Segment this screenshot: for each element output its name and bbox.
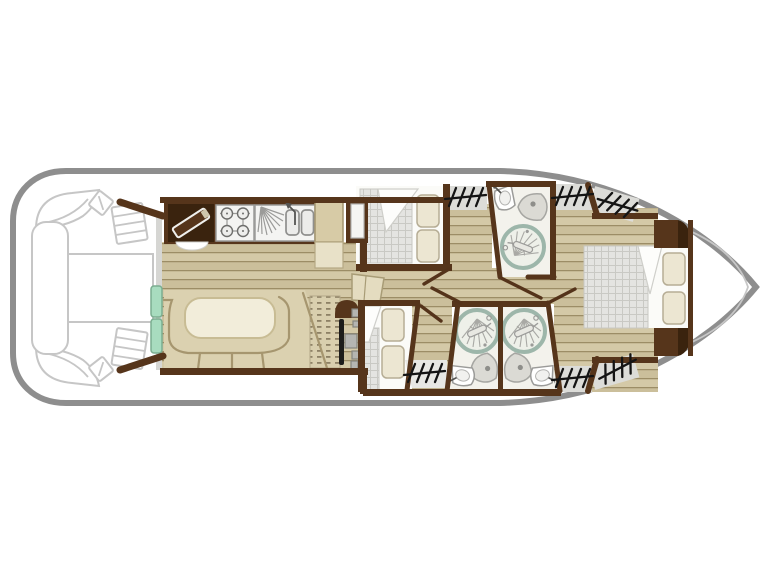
sliding-door-panel-1 — [151, 286, 162, 317]
under-counter-cabinet — [315, 242, 343, 268]
bow-headboard-top — [654, 220, 678, 248]
bow-headboard-bottom — [654, 328, 678, 356]
bed-bottom-pillow-2 — [382, 346, 404, 378]
bed-bow-mattress — [584, 246, 648, 328]
bed-bow-pillow-1 — [663, 253, 685, 285]
bow-bottom-wall — [592, 357, 658, 363]
saloon-top-wall — [160, 197, 449, 203]
top-corridor-floor — [448, 204, 492, 268]
shower-icon-bottom-right — [503, 310, 545, 352]
double-sink-icon — [255, 202, 315, 241]
deck-table — [68, 254, 153, 322]
bow-end-wall — [688, 220, 693, 356]
boat-floor-plan — [0, 0, 768, 576]
helm-wheel-hub — [345, 334, 357, 348]
cabin-bottom-left-wall — [358, 300, 365, 392]
midship-bottom-wall — [363, 389, 561, 396]
gas-hob-icon — [216, 205, 254, 241]
floor-plan-drawing — [0, 0, 768, 576]
helm-wheel-icon — [339, 319, 344, 365]
bathroom-divider-wall — [498, 305, 503, 392]
saloon-bottom-wall — [160, 368, 368, 375]
cabin-top-right-wall — [443, 184, 450, 271]
bed-bottom-pillow-1 — [382, 309, 404, 341]
deck-side-bench — [32, 222, 68, 354]
corridor-cabinet — [352, 274, 384, 302]
bathroom-top-topwall — [486, 181, 556, 187]
dinette-table — [185, 298, 275, 338]
cabin-top-bottom-wall — [356, 264, 452, 271]
fridge-cabinet — [315, 202, 343, 242]
cabin-bottom-top-wall — [358, 300, 420, 306]
shower-icon-bottom-left — [456, 310, 498, 352]
wardrobe-top-door — [351, 204, 364, 238]
bed-top-pillow-2 — [417, 230, 439, 262]
bed-bow-pillow-2 — [663, 292, 685, 324]
bathroom-br-topwall — [500, 301, 548, 307]
sliding-door-panel-2 — [151, 319, 162, 353]
